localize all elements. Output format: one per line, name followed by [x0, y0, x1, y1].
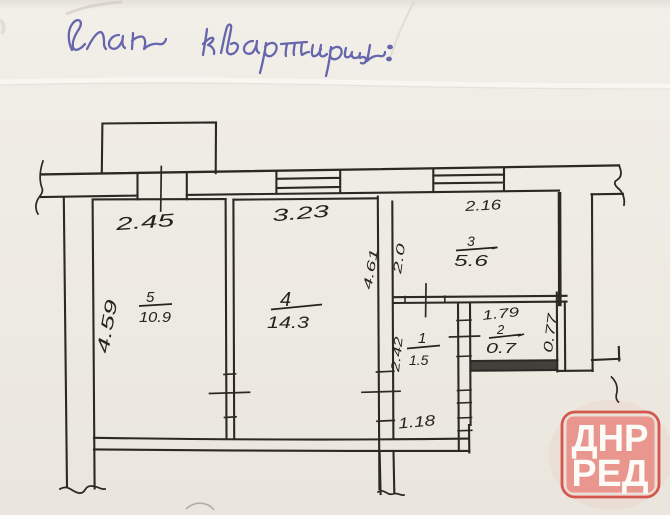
svg-text:5.6: 5.6: [454, 253, 488, 270]
svg-text:10.9: 10.9: [139, 309, 172, 326]
svg-text:3: 3: [467, 233, 475, 249]
svg-text:1.5: 1.5: [409, 352, 429, 368]
svg-text:2: 2: [496, 322, 505, 337]
svg-text:РЕД: РЕД: [572, 453, 649, 495]
svg-text:1: 1: [418, 330, 426, 347]
svg-text:14.3: 14.3: [267, 313, 310, 332]
svg-text:2.16: 2.16: [463, 196, 501, 214]
svg-text:2.45: 2.45: [114, 210, 177, 234]
svg-text:1.18: 1.18: [398, 412, 437, 432]
svg-text:5: 5: [146, 289, 155, 306]
svg-text:0.7: 0.7: [486, 340, 517, 357]
